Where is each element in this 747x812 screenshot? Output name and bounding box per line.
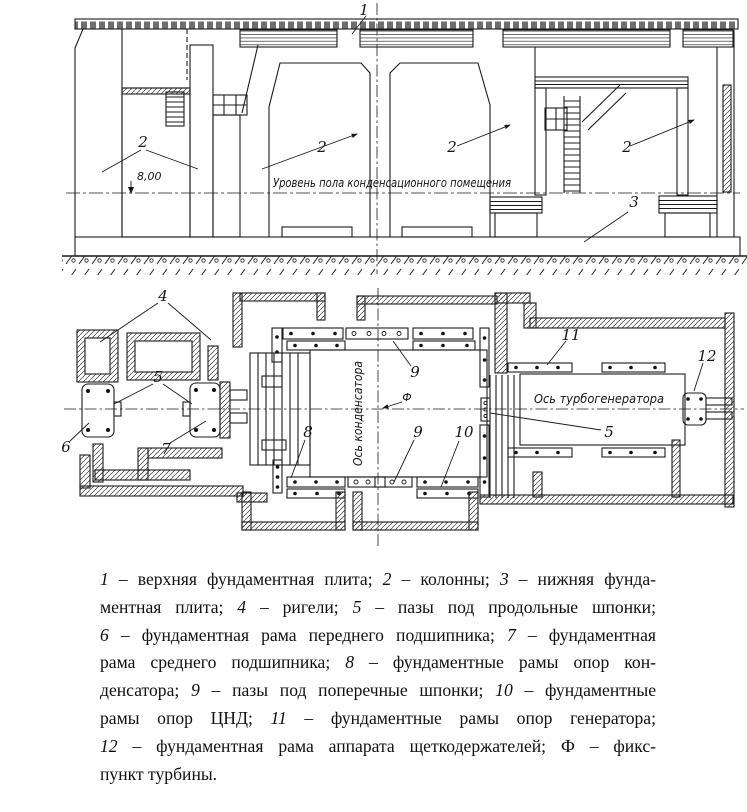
front-bearing-frame — [82, 384, 121, 437]
label-lpc-frames: 10 — [454, 423, 474, 441]
elevation-view: 1 2 2 2 2 3 8,00 Уровень пола конденсаци… — [62, 1, 747, 275]
ground-hatch — [62, 256, 747, 275]
lower-foundation-plate — [75, 237, 740, 256]
label-fix-point: Ф — [402, 391, 411, 404]
pedestal — [490, 197, 542, 237]
plan-view: 4 5 6 7 8 9 9 10 Ф 5 11 12 Ось конденсат… — [61, 287, 744, 548]
label-upper-plate: 1 — [359, 1, 369, 19]
upper-foundation-plate — [75, 19, 738, 47]
label-brush-frame: 12 — [697, 347, 716, 365]
label-transverse-keyways: 9 — [413, 423, 423, 441]
label-condenser-frames: 8 — [303, 423, 313, 441]
label-column: 2 — [621, 138, 632, 156]
floor-level-text: Уровень пола конденсационного помещения — [273, 176, 511, 190]
figure-caption: 1 – верхняя фундаментная плита; 2 – коло… — [100, 566, 656, 788]
label-column: 2 — [316, 138, 327, 156]
portal-opening-right — [390, 63, 490, 237]
condenser-pit — [310, 350, 487, 477]
level-mark: 8,00 — [137, 170, 162, 183]
small-stair — [166, 92, 184, 126]
label-middle-bearing: 7 — [161, 440, 171, 458]
label-generator-frames: 11 — [561, 326, 580, 344]
longitudinal-keyway-tab — [481, 398, 490, 421]
elevation-leaders — [102, 16, 694, 242]
caption-line: пункт турбины. — [100, 761, 656, 789]
caption-line: ментная плита; 4 – ригели; 5 – пазы под … — [100, 594, 656, 622]
generator-support-frames — [508, 363, 665, 457]
middle-bearing-frame — [183, 383, 220, 437]
large-stair — [545, 85, 626, 193]
technical-drawing-page: 1 2 2 2 2 3 8,00 Уровень пола конденсаци… — [0, 0, 747, 812]
label-crossbeams: 4 — [157, 287, 168, 305]
caption-line: 12 – фундаментная рама аппарата щеткодер… — [100, 733, 656, 761]
caption-line: 6 – фундаментная рама переднего подшипни… — [100, 622, 656, 650]
right-portal — [535, 77, 688, 195]
base-block — [282, 227, 352, 237]
caption-line: 1 – верхняя фундаментная плита; 2 – коло… — [100, 566, 656, 594]
label-column: 2 — [446, 138, 457, 156]
label-front-bearing: 6 — [61, 438, 71, 456]
condenser-axis-text: Ось конденсатора — [351, 361, 365, 466]
label-transverse-keyways: 9 — [410, 363, 420, 381]
caption-line: денсатора; 9 – пазы под поперечные шпонк… — [100, 677, 656, 705]
label-column: 2 — [137, 133, 148, 151]
condenser-top-frames — [272, 328, 489, 387]
caption-line: рамы опор ЦНД; 11 – фундаментные рамы оп… — [100, 705, 656, 733]
label-long-keyways: 5 — [153, 368, 163, 386]
turbogenerator-axis-text: Ось турбогенератора — [534, 392, 664, 406]
left-cluster-walls — [77, 330, 247, 496]
pedestal — [659, 196, 717, 237]
caption-line: рама среднего подшипника; 8 – фундаментн… — [100, 649, 656, 677]
base-block — [402, 227, 472, 237]
label-long-keyways: 5 — [604, 423, 614, 441]
turbine-foundation-drawing: 1 2 2 2 2 3 8,00 Уровень пола конденсаци… — [0, 0, 747, 562]
label-lower-plate: 3 — [629, 193, 639, 211]
